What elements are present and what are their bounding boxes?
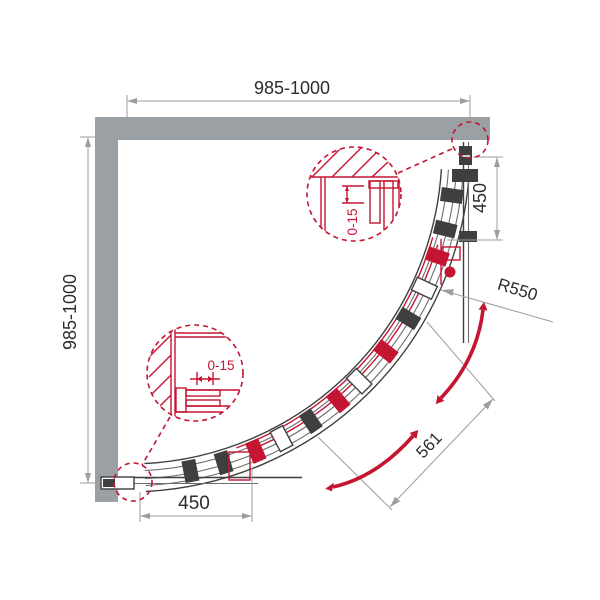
dim-r550-label: R550 <box>495 275 539 305</box>
sliding-door-edge-red-2 <box>260 245 438 446</box>
wall-top <box>95 117 490 140</box>
door-slide-arrow-lower <box>325 430 418 491</box>
wall-profile-bottom <box>101 477 302 489</box>
detail-leader-bottom <box>142 417 170 465</box>
dimension-door-opening-561: 561 <box>318 322 495 510</box>
detail-callout-bottom: 0-15 <box>147 325 244 421</box>
door-slide-arrow-upper <box>436 302 488 404</box>
shower-enclosure-plan-drawing: 985-1000 985-1000 450 450 561 <box>0 0 600 600</box>
detail-callout-top: 0-15 <box>306 137 404 243</box>
wall-left <box>95 117 118 502</box>
dimension-radius-r550: R550 <box>441 275 553 322</box>
technical-drawing-page: 985-1000 985-1000 450 450 561 <box>0 0 600 600</box>
dim-bottom-450-label: 450 <box>178 493 210 514</box>
detail-bottom-gap-label: 0-15 <box>207 358 234 373</box>
dim-left-depth-label: 985-1000 <box>60 274 80 350</box>
dim-right-450-label: 450 <box>470 183 490 213</box>
detail-top-gap-label: 0-15 <box>345 208 360 235</box>
dim-top-width-label: 985-1000 <box>254 78 330 98</box>
detail-leader-top <box>398 148 454 173</box>
dimension-left-depth: 985-1000 <box>60 137 100 483</box>
dimension-top-width: 985-1000 <box>127 78 470 122</box>
